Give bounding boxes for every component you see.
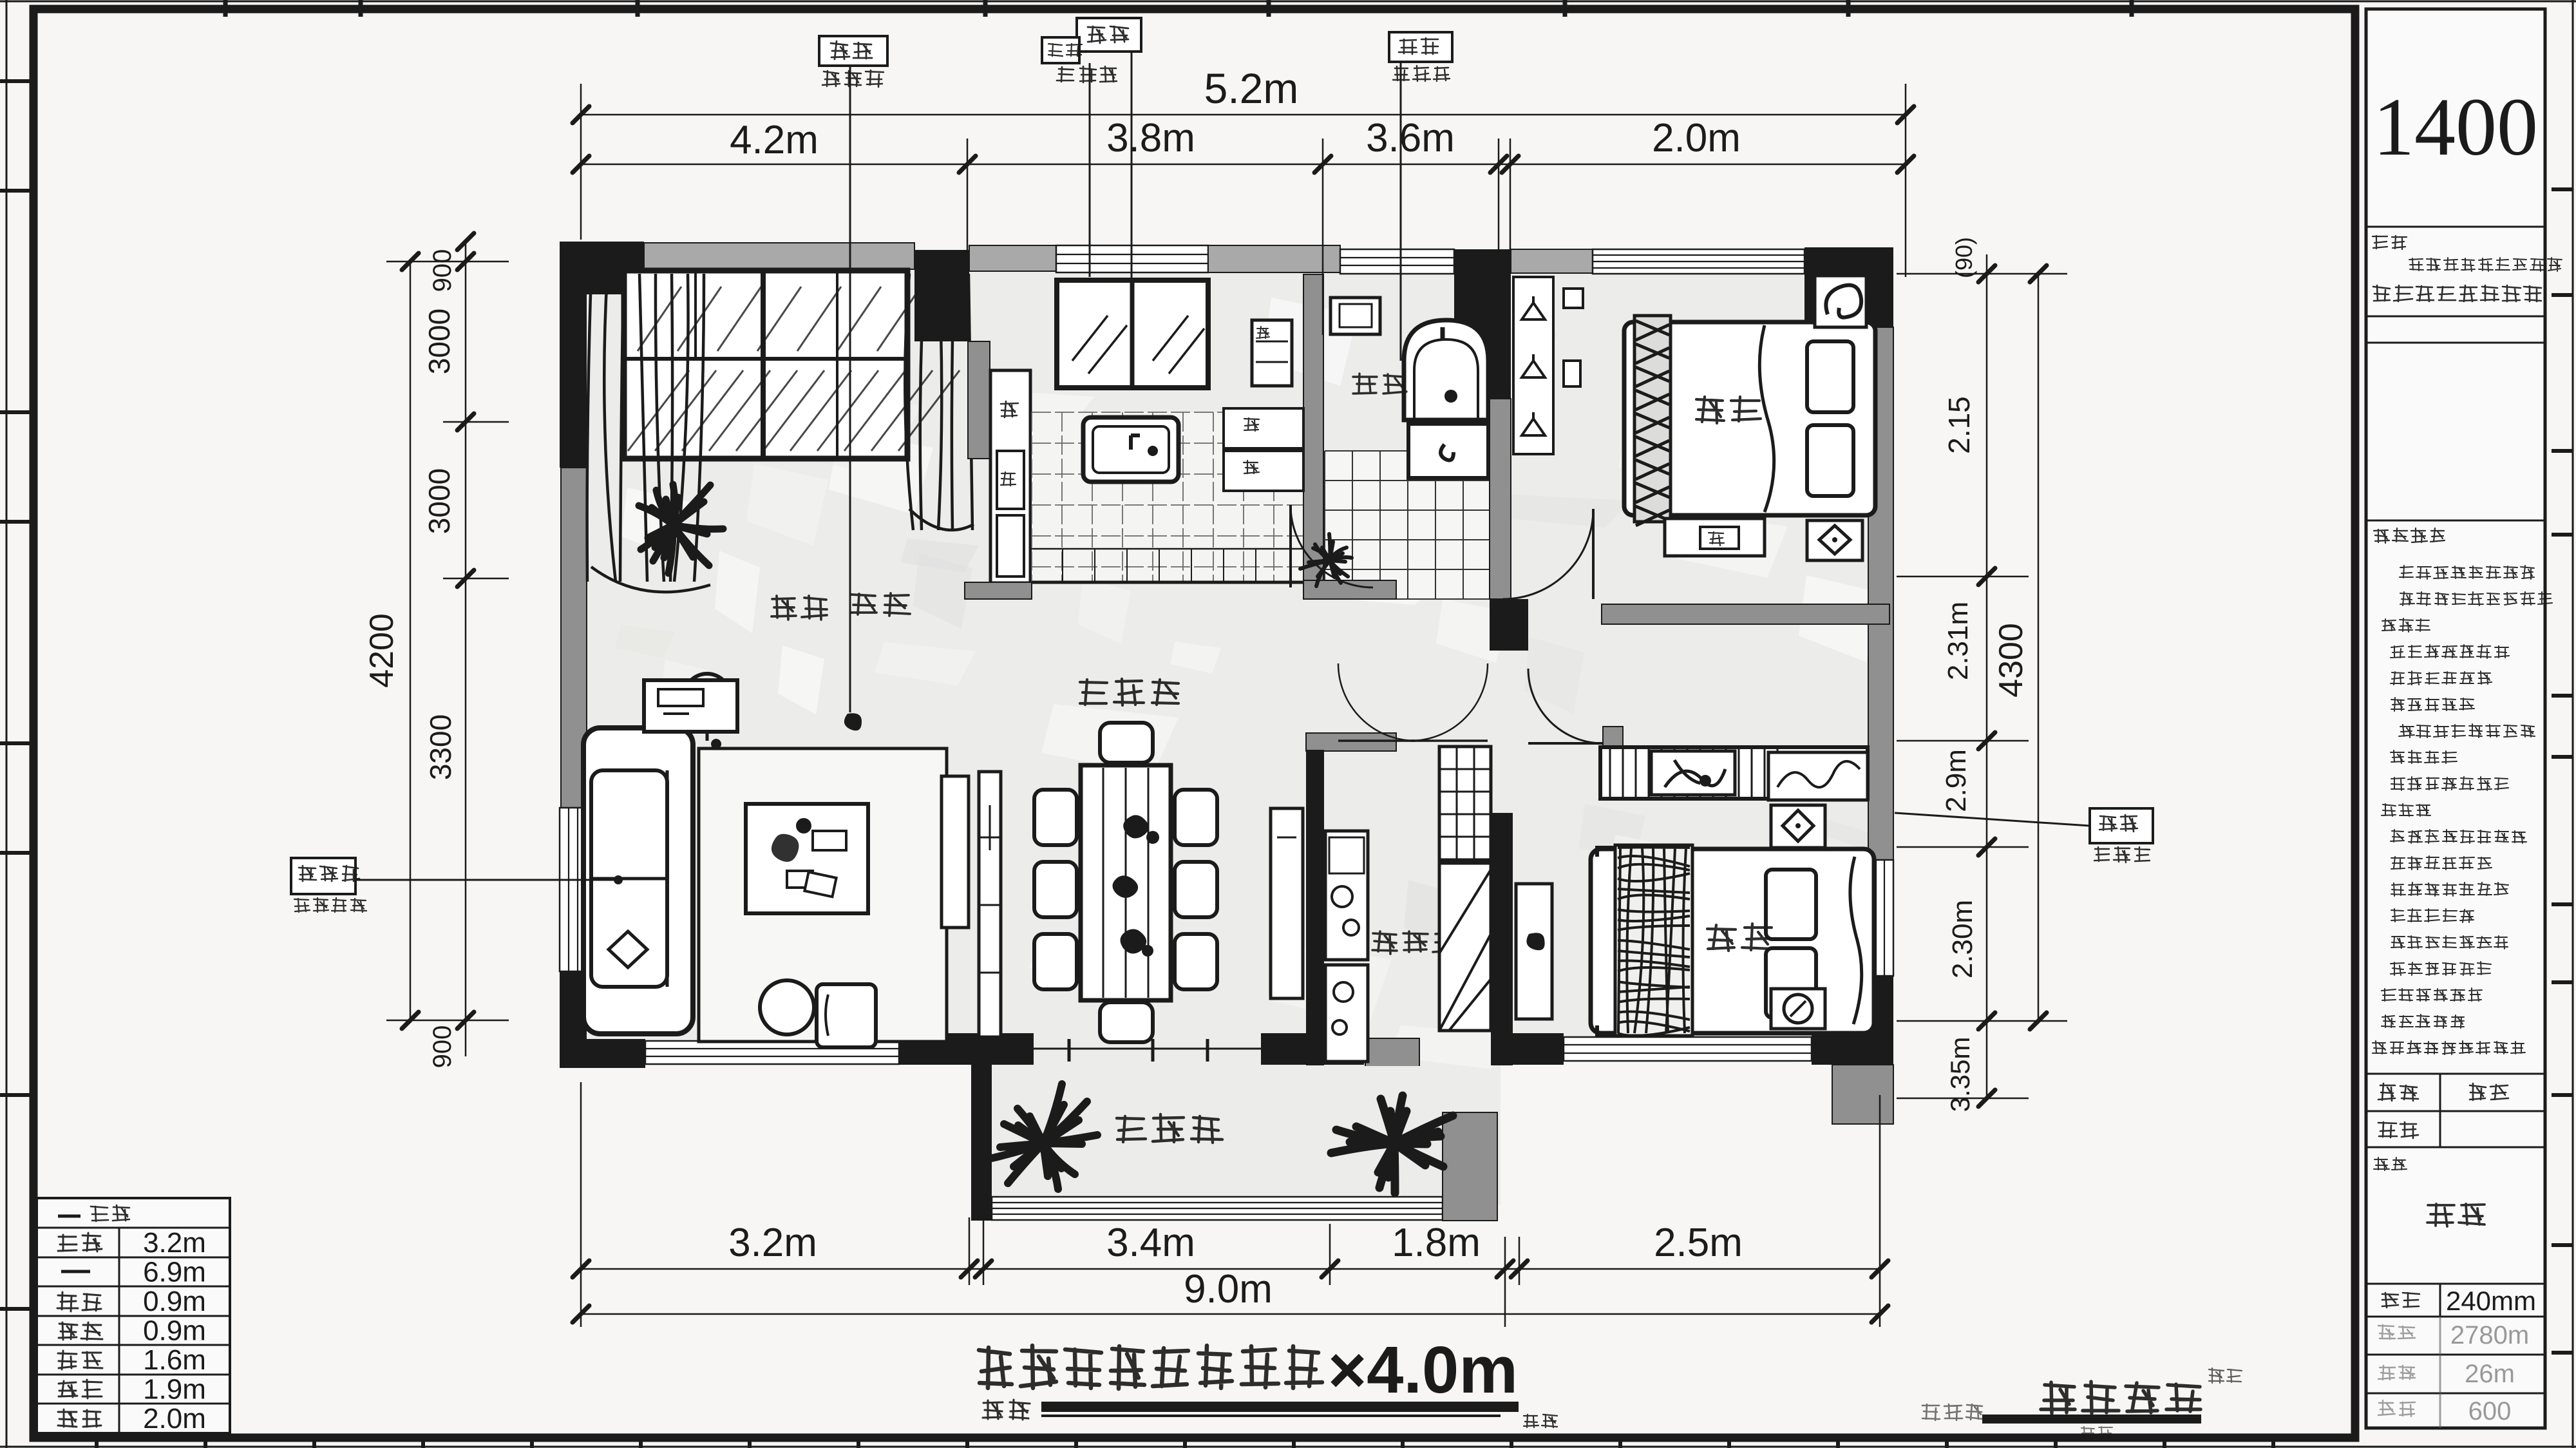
svg-text:600: 600 xyxy=(2468,1397,2512,1425)
svg-text:0.9m: 0.9m xyxy=(143,1286,206,1317)
svg-text:(90): (90) xyxy=(1951,237,1977,278)
svg-text:3.8m: 3.8m xyxy=(1106,116,1195,160)
svg-text:3.4m: 3.4m xyxy=(1106,1221,1195,1265)
svg-text:900: 900 xyxy=(428,249,457,292)
svg-text:4.2m: 4.2m xyxy=(730,118,819,162)
svg-text:1400: 1400 xyxy=(2373,81,2538,173)
svg-text:1.6m: 1.6m xyxy=(143,1344,206,1376)
svg-text:1.8m: 1.8m xyxy=(1392,1221,1481,1265)
svg-text:2.31m: 2.31m xyxy=(1942,602,1974,680)
svg-text:4200: 4200 xyxy=(363,613,401,688)
svg-text:3.35m: 3.35m xyxy=(1945,1037,1975,1112)
svg-text:6.9m: 6.9m xyxy=(143,1257,206,1288)
svg-text:2.15: 2.15 xyxy=(1942,396,1976,454)
svg-text:240mm: 240mm xyxy=(2446,1286,2536,1316)
svg-text:1.9m: 1.9m xyxy=(143,1374,206,1405)
svg-text:900: 900 xyxy=(428,1025,457,1069)
svg-text:9.0m: 9.0m xyxy=(1184,1267,1273,1311)
svg-text:2780m: 2780m xyxy=(2450,1321,2529,1349)
svg-text:3.2m: 3.2m xyxy=(728,1221,817,1265)
svg-text:2.5m: 2.5m xyxy=(1654,1221,1743,1265)
svg-text:2.30m: 2.30m xyxy=(1947,900,1978,978)
svg-text:2.9m: 2.9m xyxy=(1940,749,1972,812)
svg-text:3.2m: 3.2m xyxy=(143,1227,206,1259)
svg-text:0.9m: 0.9m xyxy=(143,1315,206,1347)
svg-text:26m: 26m xyxy=(2465,1360,2515,1388)
svg-text:2.0m: 2.0m xyxy=(143,1403,206,1434)
svg-text:×4.0m: ×4.0m xyxy=(1328,1333,1518,1407)
svg-text:3.6m: 3.6m xyxy=(1366,116,1455,160)
svg-text:3000: 3000 xyxy=(422,309,456,374)
svg-text:3000: 3000 xyxy=(422,468,456,534)
svg-text:4300: 4300 xyxy=(1993,623,2030,698)
svg-text:3300: 3300 xyxy=(424,714,457,780)
svg-text:5.2m: 5.2m xyxy=(1204,64,1299,112)
svg-text:2.0m: 2.0m xyxy=(1652,116,1741,160)
